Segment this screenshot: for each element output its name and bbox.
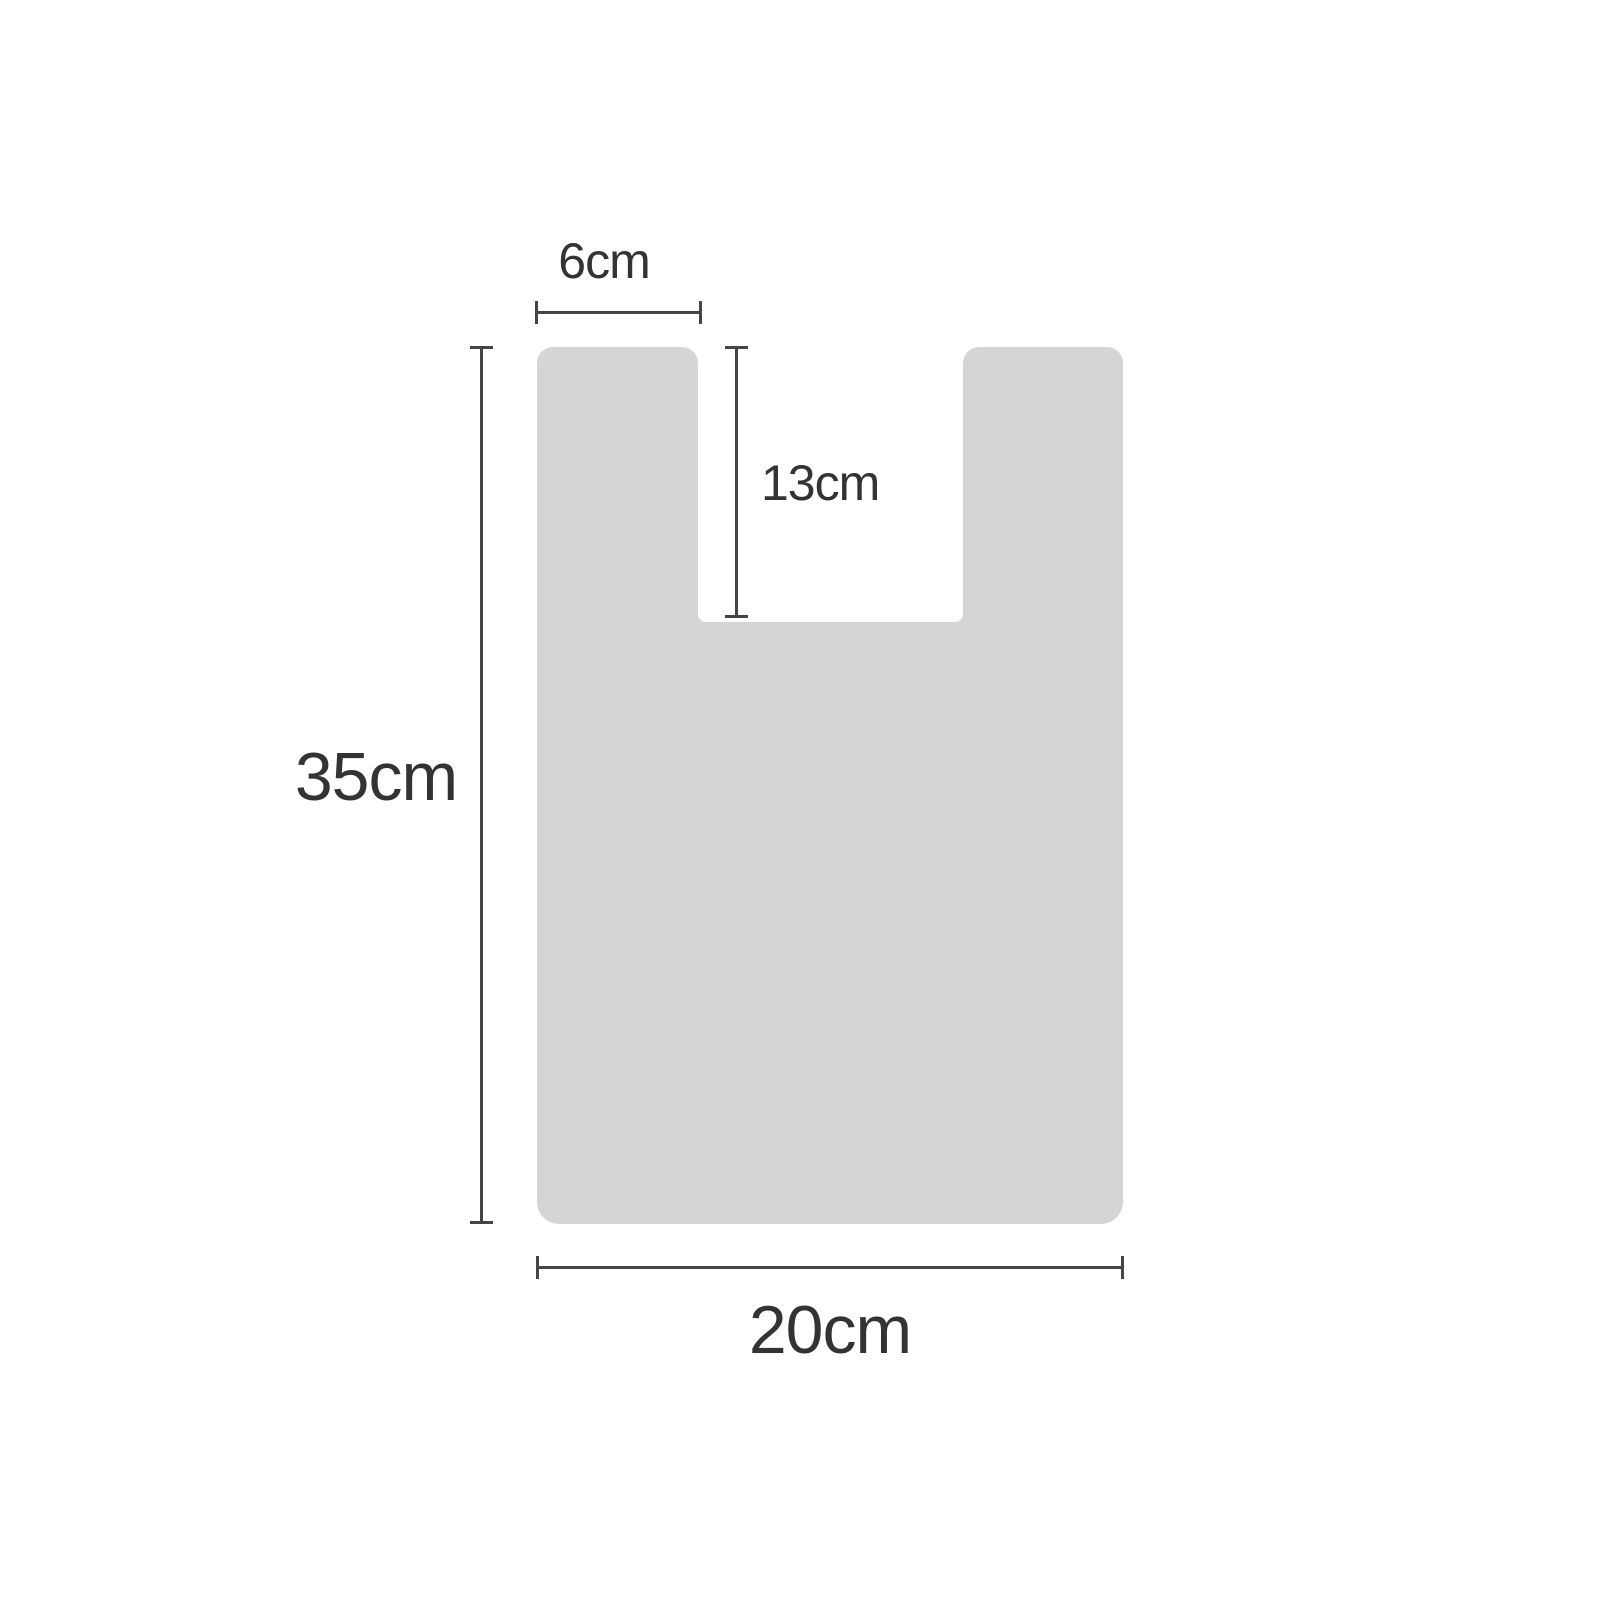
dimension-line-bag-width [537, 1266, 1123, 1269]
dimension-line-bag-height [480, 347, 483, 1223]
dimension-diagram: 6cm 13cm 35cm 20cm [0, 0, 1600, 1600]
dimension-label-handle-width: 6cm [558, 236, 649, 286]
dimension-line-notch-depth [735, 347, 738, 617]
dimension-label-notch-depth: 13cm [761, 458, 879, 508]
dimension-label-bag-height: 35cm [295, 743, 457, 811]
dimension-line-handle-width [536, 311, 701, 314]
dimension-label-bag-width: 20cm [749, 1296, 911, 1364]
